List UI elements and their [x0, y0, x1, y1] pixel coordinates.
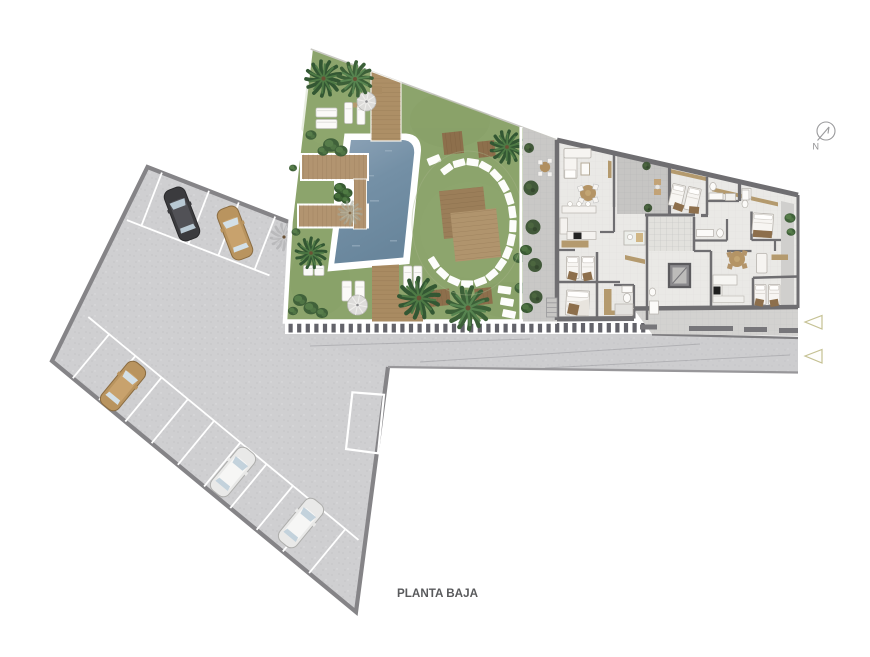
- svg-text:PLANTA BAJA: PLANTA BAJA: [397, 586, 478, 600]
- svg-text:N: N: [813, 142, 820, 152]
